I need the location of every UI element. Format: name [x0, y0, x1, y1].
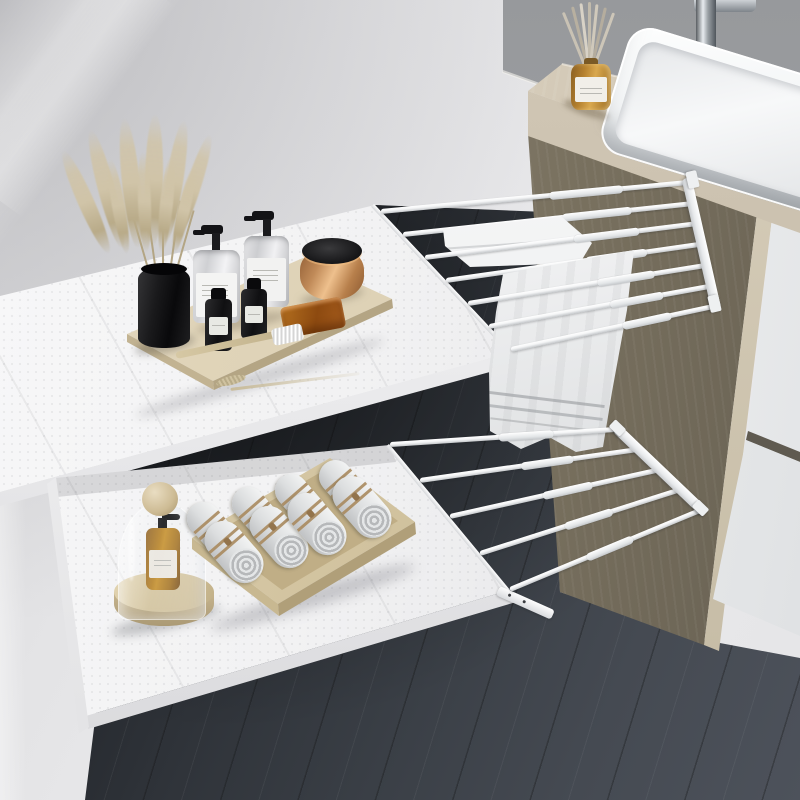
bottle-label: [209, 317, 228, 335]
black-vase: [138, 266, 190, 348]
pump-stem: [212, 233, 220, 251]
diffuser-bottle: [571, 64, 611, 110]
pump-spout: [244, 216, 256, 221]
vase-mouth: [141, 263, 187, 275]
pump-stem: [263, 219, 271, 237]
bathroom-scene: [0, 0, 800, 800]
pump-spout: [193, 230, 205, 235]
bottle-label: [245, 306, 263, 323]
copper-jar-lid: [302, 238, 362, 264]
wall-corner-light: [0, 460, 26, 800]
small-black-bottle: [241, 289, 267, 339]
dome-knob: [142, 482, 178, 516]
diffuser-label: [575, 77, 607, 102]
